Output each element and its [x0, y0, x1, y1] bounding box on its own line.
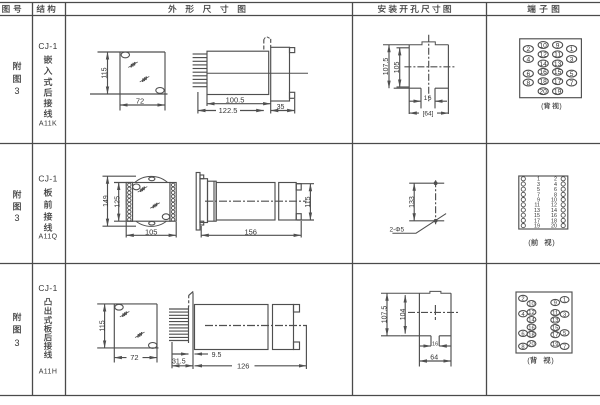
svg-text:16: 16 [540, 69, 548, 76]
svg-text:105: 105 [145, 227, 158, 236]
svg-text:126: 126 [237, 361, 250, 370]
svg-text:17: 17 [552, 333, 558, 339]
svg-text:2: 2 [521, 297, 524, 303]
svg-text:[64]: [64] [423, 110, 434, 117]
svg-text:9: 9 [554, 301, 557, 307]
svg-text:15: 15 [552, 326, 558, 332]
svg-text:8: 8 [526, 80, 530, 87]
svg-text:3: 3 [563, 312, 566, 318]
svg-text:11: 11 [552, 311, 558, 317]
svg-text:115: 115 [305, 196, 312, 207]
svg-text:A11H: A11H [39, 369, 58, 376]
svg-text:12: 12 [540, 52, 548, 59]
svg-text:3: 3 [14, 338, 19, 348]
svg-text:107.5: 107.5 [383, 58, 390, 76]
svg-text:2: 2 [526, 46, 530, 53]
svg-text:72: 72 [130, 353, 138, 362]
svg-text:14: 14 [528, 318, 535, 324]
svg-text:20: 20 [551, 224, 557, 230]
svg-text:16: 16 [424, 95, 433, 102]
svg-text:11: 11 [554, 52, 561, 59]
svg-text:(: ( [527, 356, 530, 365]
svg-text:9.5: 9.5 [212, 352, 222, 359]
svg-text:): ) [551, 356, 554, 365]
svg-text:10: 10 [528, 302, 534, 308]
svg-text:10: 10 [540, 42, 548, 49]
svg-text:18: 18 [528, 333, 534, 339]
svg-text:104: 104 [400, 308, 407, 320]
svg-text:19: 19 [552, 342, 558, 348]
svg-text:13: 13 [552, 318, 558, 324]
svg-text:6: 6 [521, 331, 524, 337]
svg-text:72: 72 [136, 97, 144, 106]
svg-text:13: 13 [554, 61, 562, 68]
svg-text:149: 149 [103, 195, 110, 207]
svg-text:115: 115 [99, 320, 106, 331]
svg-text:(: ( [528, 238, 531, 247]
svg-text:16: 16 [432, 342, 438, 348]
svg-text:3: 3 [14, 213, 19, 223]
svg-text:19: 19 [534, 224, 540, 230]
svg-text:CJ-1: CJ-1 [38, 41, 57, 51]
svg-text:): ) [559, 104, 561, 111]
svg-text:A11Q: A11Q [39, 233, 58, 240]
svg-text:1: 1 [563, 298, 566, 304]
svg-text:64: 64 [430, 355, 438, 362]
svg-text:15: 15 [554, 69, 562, 76]
svg-text:115: 115 [102, 67, 109, 78]
svg-text:20: 20 [528, 342, 534, 348]
svg-text:19: 19 [554, 89, 562, 96]
svg-text:107.5: 107.5 [381, 306, 388, 324]
svg-text:7: 7 [563, 344, 566, 350]
svg-text:4: 4 [526, 56, 530, 63]
svg-text:1: 1 [570, 46, 574, 53]
svg-text:156: 156 [244, 227, 257, 236]
svg-text:18: 18 [540, 79, 548, 86]
svg-text:105: 105 [394, 61, 401, 73]
svg-text:5: 5 [563, 331, 566, 337]
svg-text:(: ( [541, 104, 544, 111]
svg-text:3: 3 [14, 86, 19, 96]
svg-text:17: 17 [554, 79, 562, 86]
svg-text:7: 7 [570, 80, 574, 87]
svg-text:16: 16 [528, 325, 534, 331]
svg-text:2-Φ5: 2-Φ5 [390, 227, 405, 234]
svg-text:6: 6 [526, 71, 530, 78]
svg-text:31.5: 31.5 [172, 358, 186, 365]
svg-text:9: 9 [556, 42, 560, 49]
svg-text:35: 35 [277, 104, 285, 111]
svg-text:A11K: A11K [39, 121, 57, 128]
svg-text:20: 20 [540, 89, 548, 96]
svg-text:5: 5 [570, 71, 574, 78]
svg-text:100.5: 100.5 [226, 96, 245, 105]
svg-text:133: 133 [409, 196, 416, 208]
svg-text:CJ-1: CJ-1 [38, 174, 57, 184]
svg-text:14: 14 [540, 61, 548, 68]
svg-text:): ) [552, 238, 555, 247]
svg-text:CJ-1: CJ-1 [38, 283, 57, 293]
svg-text:3: 3 [570, 56, 574, 63]
svg-text:125: 125 [115, 196, 122, 208]
svg-text:8: 8 [521, 344, 524, 350]
svg-text:122.5: 122.5 [219, 106, 238, 115]
svg-text:12: 12 [528, 310, 534, 316]
